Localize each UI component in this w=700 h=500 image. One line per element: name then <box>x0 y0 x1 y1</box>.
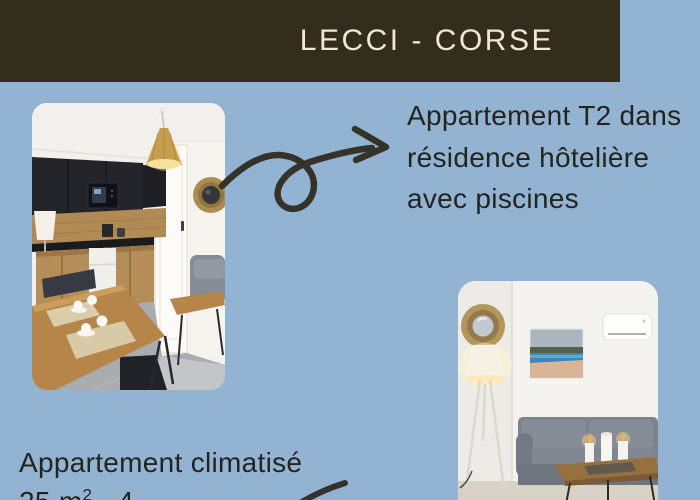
details-line-1: Appartement climatisé <box>19 443 302 482</box>
area-suffix: - 4 <box>92 486 134 500</box>
beach-picture <box>530 329 583 378</box>
flyer-canvas: LECCI - CORSE <box>0 0 700 500</box>
candle <box>601 434 612 463</box>
area-sup: 2 <box>82 486 92 500</box>
curly-arrow-icon <box>200 110 400 225</box>
area-value: 25 m <box>19 486 82 500</box>
kitchen-photo-art <box>32 103 225 390</box>
details-text: Appartement climatisé 25 m2 - 4 <box>19 443 302 500</box>
living-room-photo-art <box>458 281 658 500</box>
page-title: LECCI - CORSE <box>300 24 554 58</box>
microwave <box>88 183 118 208</box>
header-bar: LECCI - CORSE <box>0 0 620 82</box>
candle <box>585 443 594 464</box>
coffee-machine <box>102 224 113 237</box>
living-room-photo <box>458 281 658 500</box>
air-conditioner <box>603 314 652 340</box>
raffia-mirror <box>461 304 505 348</box>
headline-line-1: Appartement T2 dans <box>407 95 681 137</box>
headline: Appartement T2 dans résidence hôtelière … <box>407 95 681 220</box>
kettle <box>117 228 125 237</box>
details-line-2: 25 m2 - 4 <box>19 482 302 500</box>
kitchen-dining-photo <box>32 103 225 390</box>
headline-line-2: résidence hôtelière <box>407 137 681 179</box>
headline-line-3: avec piscines <box>407 178 681 220</box>
